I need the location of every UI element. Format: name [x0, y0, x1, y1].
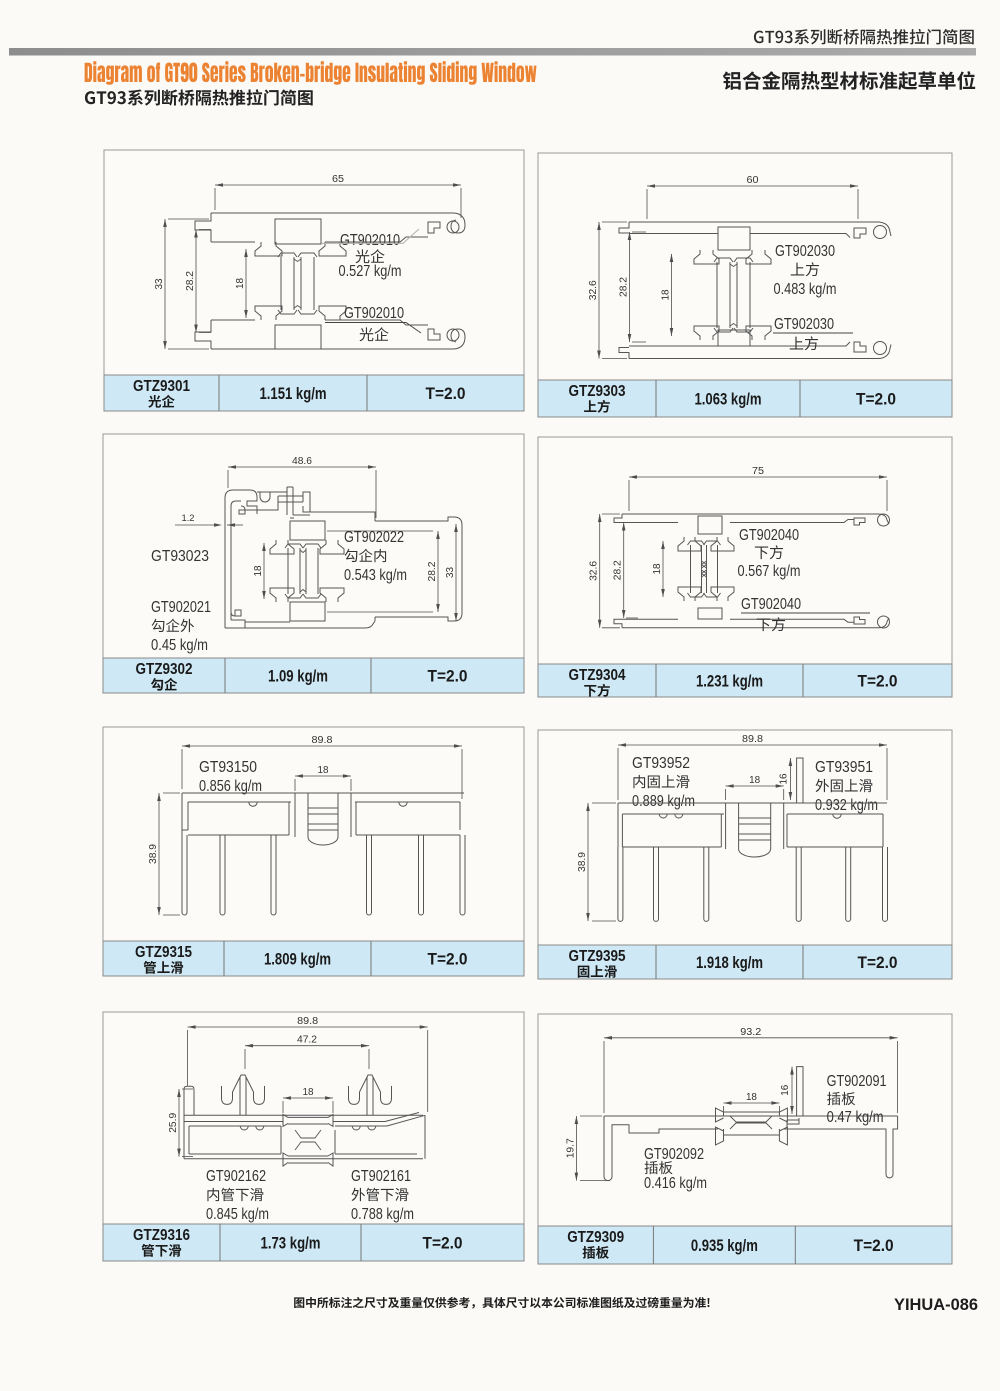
svg-text:0.889 kg/m: 0.889 kg/m: [632, 793, 695, 810]
svg-text:28.2: 28.2: [185, 271, 196, 291]
svg-text:32.6: 32.6: [589, 560, 600, 580]
svg-text:GTZ9304: GTZ9304: [569, 667, 626, 684]
svg-text:T=2.0: T=2.0: [426, 384, 466, 403]
svg-text:33: 33: [445, 567, 456, 578]
svg-text:GT902161: GT902161: [351, 1168, 411, 1185]
svg-text:0.483 kg/m: 0.483 kg/m: [774, 281, 837, 298]
svg-text:GTZ9316: GTZ9316: [133, 1227, 190, 1244]
svg-text:GT902030: GT902030: [775, 243, 835, 260]
svg-text:T=2.0: T=2.0: [858, 672, 898, 691]
svg-text:16: 16: [778, 773, 789, 784]
svg-text:47.2: 47.2: [297, 1035, 317, 1046]
svg-text:T=2.0: T=2.0: [423, 1234, 463, 1253]
svg-text:GT902010: GT902010: [340, 232, 400, 249]
svg-text:18: 18: [303, 1087, 314, 1098]
svg-text:28.2: 28.2: [427, 561, 438, 581]
svg-text:1.73 kg/m: 1.73 kg/m: [261, 1234, 321, 1253]
svg-text:GTZ9303: GTZ9303: [569, 383, 626, 400]
svg-text:18: 18: [235, 278, 246, 289]
svg-text:GT93023: GT93023: [151, 548, 209, 565]
svg-text:32.6: 32.6: [588, 280, 599, 300]
svg-text:GT902092: GT902092: [644, 1146, 704, 1163]
svg-text:18: 18: [661, 289, 672, 300]
svg-text:18: 18: [253, 565, 264, 576]
svg-text:38.9: 38.9: [148, 844, 159, 864]
svg-text:GTZ9309: GTZ9309: [567, 1229, 624, 1246]
svg-text:0.47 kg/m: 0.47 kg/m: [827, 1109, 884, 1126]
svg-text:18: 18: [749, 775, 760, 786]
svg-text:93.2: 93.2: [740, 1027, 761, 1038]
svg-text:89.8: 89.8: [297, 1016, 318, 1027]
svg-text:GT902040: GT902040: [739, 527, 799, 544]
svg-text:48.6: 48.6: [292, 456, 312, 467]
svg-text:60: 60: [747, 175, 759, 186]
svg-text:16: 16: [780, 1084, 791, 1095]
svg-text:65: 65: [332, 174, 344, 185]
svg-text:0.527 kg/m: 0.527 kg/m: [339, 263, 402, 280]
svg-text:T=2.0: T=2.0: [854, 1236, 894, 1255]
svg-text:89.8: 89.8: [742, 734, 763, 745]
svg-text:0.935 kg/m: 0.935 kg/m: [691, 1236, 758, 1255]
svg-text:0.567 kg/m: 0.567 kg/m: [738, 563, 801, 580]
svg-text:18: 18: [318, 765, 329, 776]
svg-text:28.2: 28.2: [619, 277, 630, 297]
svg-text:0.416 kg/m: 0.416 kg/m: [644, 1175, 707, 1192]
svg-text:GT902022: GT902022: [344, 529, 404, 546]
svg-text:GTZ9301: GTZ9301: [133, 378, 190, 395]
svg-text:38.9: 38.9: [577, 852, 588, 872]
svg-text:25.9: 25.9: [168, 1112, 179, 1132]
svg-text:T=2.0: T=2.0: [428, 950, 468, 969]
svg-text:GT93150: GT93150: [199, 759, 257, 776]
svg-text:GT902010: GT902010: [344, 305, 404, 322]
svg-text:GT93952: GT93952: [632, 755, 690, 772]
svg-text:89.8: 89.8: [312, 735, 333, 746]
svg-text:33: 33: [154, 278, 165, 289]
svg-text:1.918 kg/m: 1.918 kg/m: [696, 953, 763, 972]
svg-text:T=2.0: T=2.0: [428, 667, 468, 686]
svg-text:1.809 kg/m: 1.809 kg/m: [264, 950, 331, 969]
svg-text:YIHUA-086: YIHUA-086: [894, 1296, 978, 1314]
svg-text:GT902162: GT902162: [206, 1168, 266, 1185]
svg-text:0.45 kg/m: 0.45 kg/m: [151, 637, 208, 654]
svg-text:19.7: 19.7: [565, 1138, 576, 1158]
svg-text:28.2: 28.2: [613, 560, 624, 580]
svg-text:GTZ9315: GTZ9315: [135, 944, 192, 961]
svg-text:1.09 kg/m: 1.09 kg/m: [268, 667, 328, 686]
svg-text:GTZ9302: GTZ9302: [136, 661, 193, 678]
svg-text:0.932 kg/m: 0.932 kg/m: [815, 797, 878, 814]
svg-text:1.2: 1.2: [182, 513, 195, 524]
svg-text:0.845 kg/m: 0.845 kg/m: [206, 1206, 269, 1223]
svg-text:GT902040: GT902040: [741, 596, 801, 613]
svg-text:GT902091: GT902091: [827, 1073, 887, 1090]
svg-text:0.856 kg/m: 0.856 kg/m: [199, 778, 262, 795]
svg-text:T=2.0: T=2.0: [858, 953, 898, 972]
svg-text:1.063 kg/m: 1.063 kg/m: [695, 390, 762, 409]
svg-text:18: 18: [746, 1092, 757, 1103]
svg-text:0.543 kg/m: 0.543 kg/m: [344, 567, 407, 584]
svg-text:GTZ9395: GTZ9395: [569, 948, 626, 965]
svg-text:0.788 kg/m: 0.788 kg/m: [351, 1206, 414, 1223]
svg-text:GT902021: GT902021: [151, 599, 211, 616]
svg-text:75: 75: [752, 466, 764, 477]
svg-text:18: 18: [652, 563, 663, 574]
svg-text:1.231 kg/m: 1.231 kg/m: [696, 672, 763, 691]
svg-text:1.151 kg/m: 1.151 kg/m: [260, 384, 327, 403]
svg-text:GT902030: GT902030: [774, 316, 834, 333]
svg-text:T=2.0: T=2.0: [856, 390, 896, 409]
svg-text:GT93951: GT93951: [815, 759, 873, 776]
